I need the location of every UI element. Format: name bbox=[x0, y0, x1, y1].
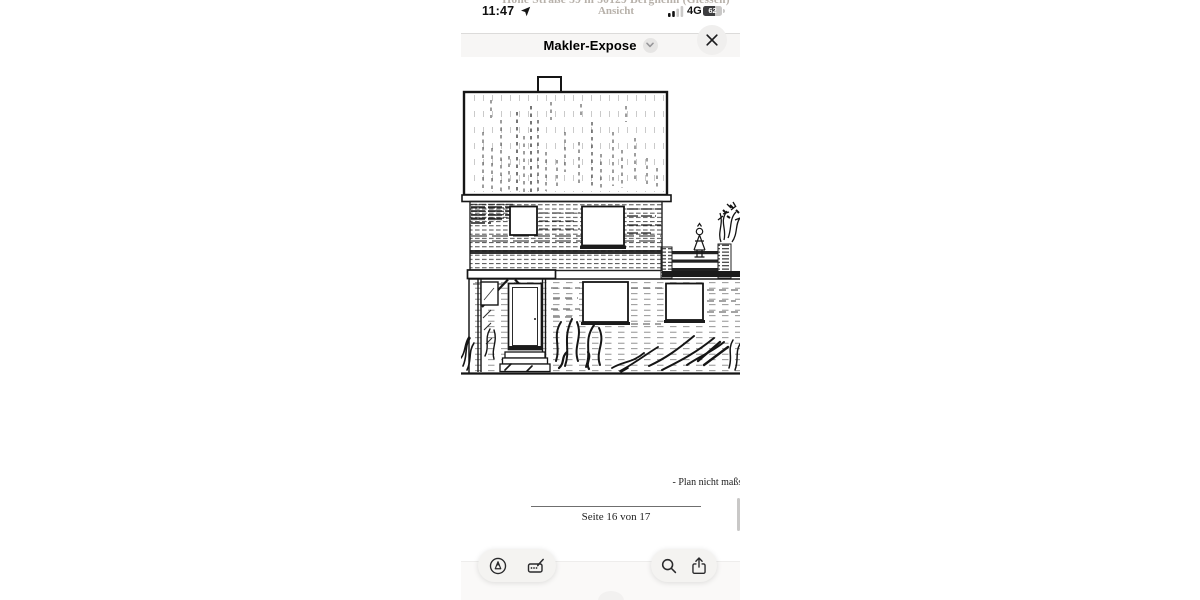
network-type-label: 4G bbox=[687, 5, 702, 17]
battery-nub bbox=[723, 9, 725, 14]
status-bar: 11:47 4G 62 bbox=[461, 0, 740, 33]
scroll-indicator[interactable] bbox=[737, 498, 740, 531]
markup-toolbar bbox=[478, 549, 556, 582]
location-arrow-icon bbox=[520, 6, 531, 17]
page-indicator: Seite 16 von 17 bbox=[531, 511, 701, 523]
share-icon bbox=[688, 555, 710, 577]
title-menu-button[interactable] bbox=[643, 38, 658, 53]
search-button[interactable] bbox=[657, 554, 681, 578]
signal-strength-icon bbox=[668, 6, 684, 17]
pdf-preview-screen: Hohe Straße 59 in 50129 Bergheim (Glesse… bbox=[461, 0, 740, 600]
screenshot-canvas: Hohe Straße 59 in 50129 Bergheim (Glesse… bbox=[0, 0, 1200, 600]
plan-footnote: - Plan nicht maßst bbox=[673, 477, 741, 488]
battery-percent-label: 62 bbox=[703, 6, 722, 17]
close-icon bbox=[705, 33, 719, 47]
battery-icon: 62 bbox=[703, 6, 722, 17]
footer-rule bbox=[531, 506, 701, 507]
house-drawing bbox=[461, 60, 740, 380]
markup-pen-icon bbox=[487, 555, 509, 577]
autofill-icon bbox=[524, 554, 548, 578]
close-button[interactable] bbox=[697, 25, 727, 55]
search-icon bbox=[658, 555, 680, 577]
markup-pen-button[interactable] bbox=[486, 554, 510, 578]
actions-toolbar bbox=[651, 549, 717, 582]
share-button[interactable] bbox=[687, 554, 711, 578]
document-title: Makler-Expose bbox=[543, 38, 636, 53]
chevron-down-icon bbox=[646, 42, 654, 48]
status-time: 11:47 bbox=[482, 4, 514, 18]
autofill-button[interactable] bbox=[524, 554, 548, 578]
